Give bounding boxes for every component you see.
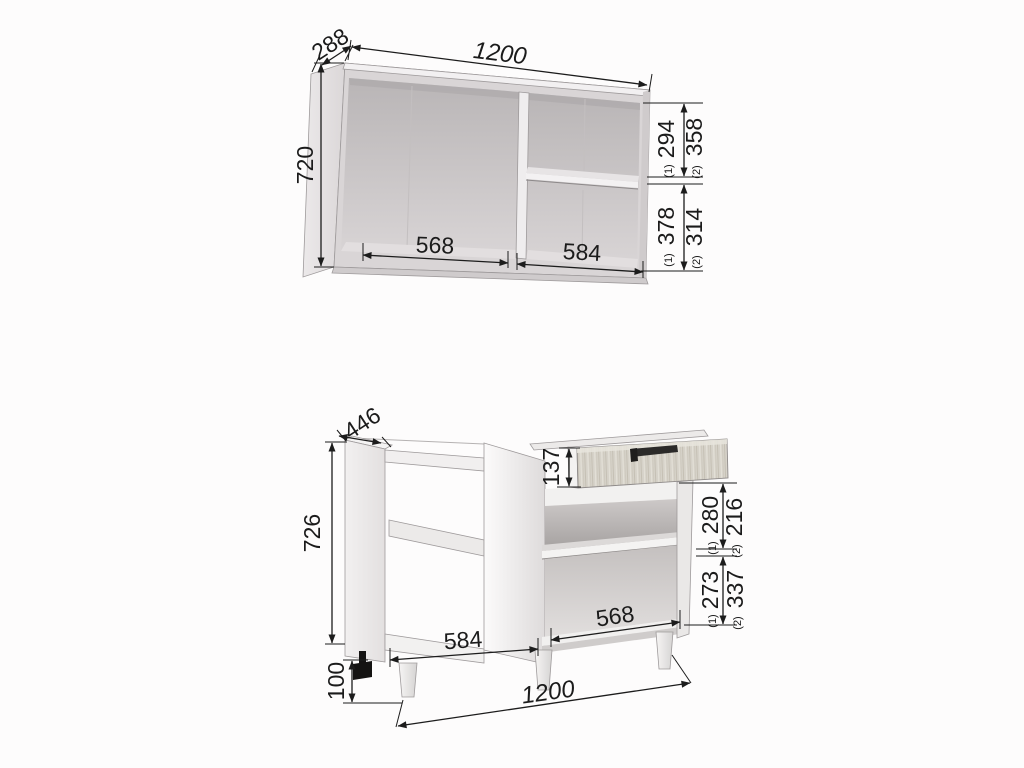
- dim-wall-height: 720: [292, 146, 318, 184]
- dim-base-height: 726: [299, 514, 325, 552]
- dim-wall-width: 1200: [472, 37, 529, 70]
- dim-wall-upper-height-v2: 358: [681, 118, 707, 156]
- dim-base-lower-height-v1: 273: [697, 571, 723, 609]
- dim-wall-lower-height-v2-sup: (2): [691, 255, 703, 268]
- dim-base-drawer-front-height: 137: [538, 448, 564, 486]
- base-top-rail: [385, 450, 484, 471]
- dim-wall-left-compartment-width: 568: [415, 231, 454, 258]
- dim-wall-right-compartment-width: 584: [562, 238, 602, 266]
- dim-base-left-compartment-width: 584: [443, 626, 483, 655]
- dim-base-right-compartment-width: 568: [594, 600, 636, 631]
- dim-wall-lower-height-v2: 314: [681, 208, 707, 247]
- base-center-partition: [484, 443, 545, 664]
- base-left-side-panel: [345, 440, 385, 662]
- leveling-foot: [353, 661, 372, 680]
- dim-wall-lower-height-v1-sup: (1): [663, 253, 675, 266]
- dim-wall-upper-height-v1: 294: [653, 120, 679, 159]
- dim-base-leg-height: 100: [323, 662, 349, 700]
- dim-base-width: 1200: [520, 675, 577, 709]
- base-right-panel: [677, 480, 693, 638]
- dim-base-upper-height-v1: 280: [697, 496, 723, 534]
- wall-cabinet-drawing: 1200 288 720 568 584 294 (1) 358 (2) 378…: [292, 23, 707, 284]
- dim-base-lower-height-v2: 337: [722, 570, 748, 608]
- dim-base-lower-height-v2-sup: (2): [732, 616, 744, 629]
- drawer: [568, 439, 728, 488]
- base-cabinet-drawing: 446 726 100 137 584 568 1200 280 (1) 216…: [299, 402, 748, 727]
- dim-wall-lower-height-v1: 378: [653, 207, 679, 245]
- cabinet-leg-left: [399, 663, 417, 697]
- furniture-dimension-diagram: 1200 288 720 568 584 294 (1) 358 (2) 378…: [0, 0, 1024, 768]
- dim-base-lower-height-v1-sup: (1): [707, 614, 719, 627]
- drawer-handle-end-cap: [630, 448, 638, 462]
- cabinet-leg-right: [656, 632, 673, 669]
- base-mid-rail: [389, 520, 484, 556]
- base-cabinet-body: [345, 430, 728, 697]
- dim-base-upper-height-v2: 216: [721, 498, 747, 536]
- dim-wall-upper-height-v2-sup: (2): [691, 165, 703, 178]
- drawing-canvas: 1200 288 720 568 584 294 (1) 358 (2) 378…: [0, 0, 1024, 768]
- dim-base-upper-height-v1-sup: (1): [707, 541, 719, 554]
- dim-base-upper-height-v2-sup: (2): [731, 544, 743, 557]
- dim-wall-upper-height-v1-sup: (1): [663, 164, 675, 177]
- dim-base-depth: 446: [339, 402, 385, 445]
